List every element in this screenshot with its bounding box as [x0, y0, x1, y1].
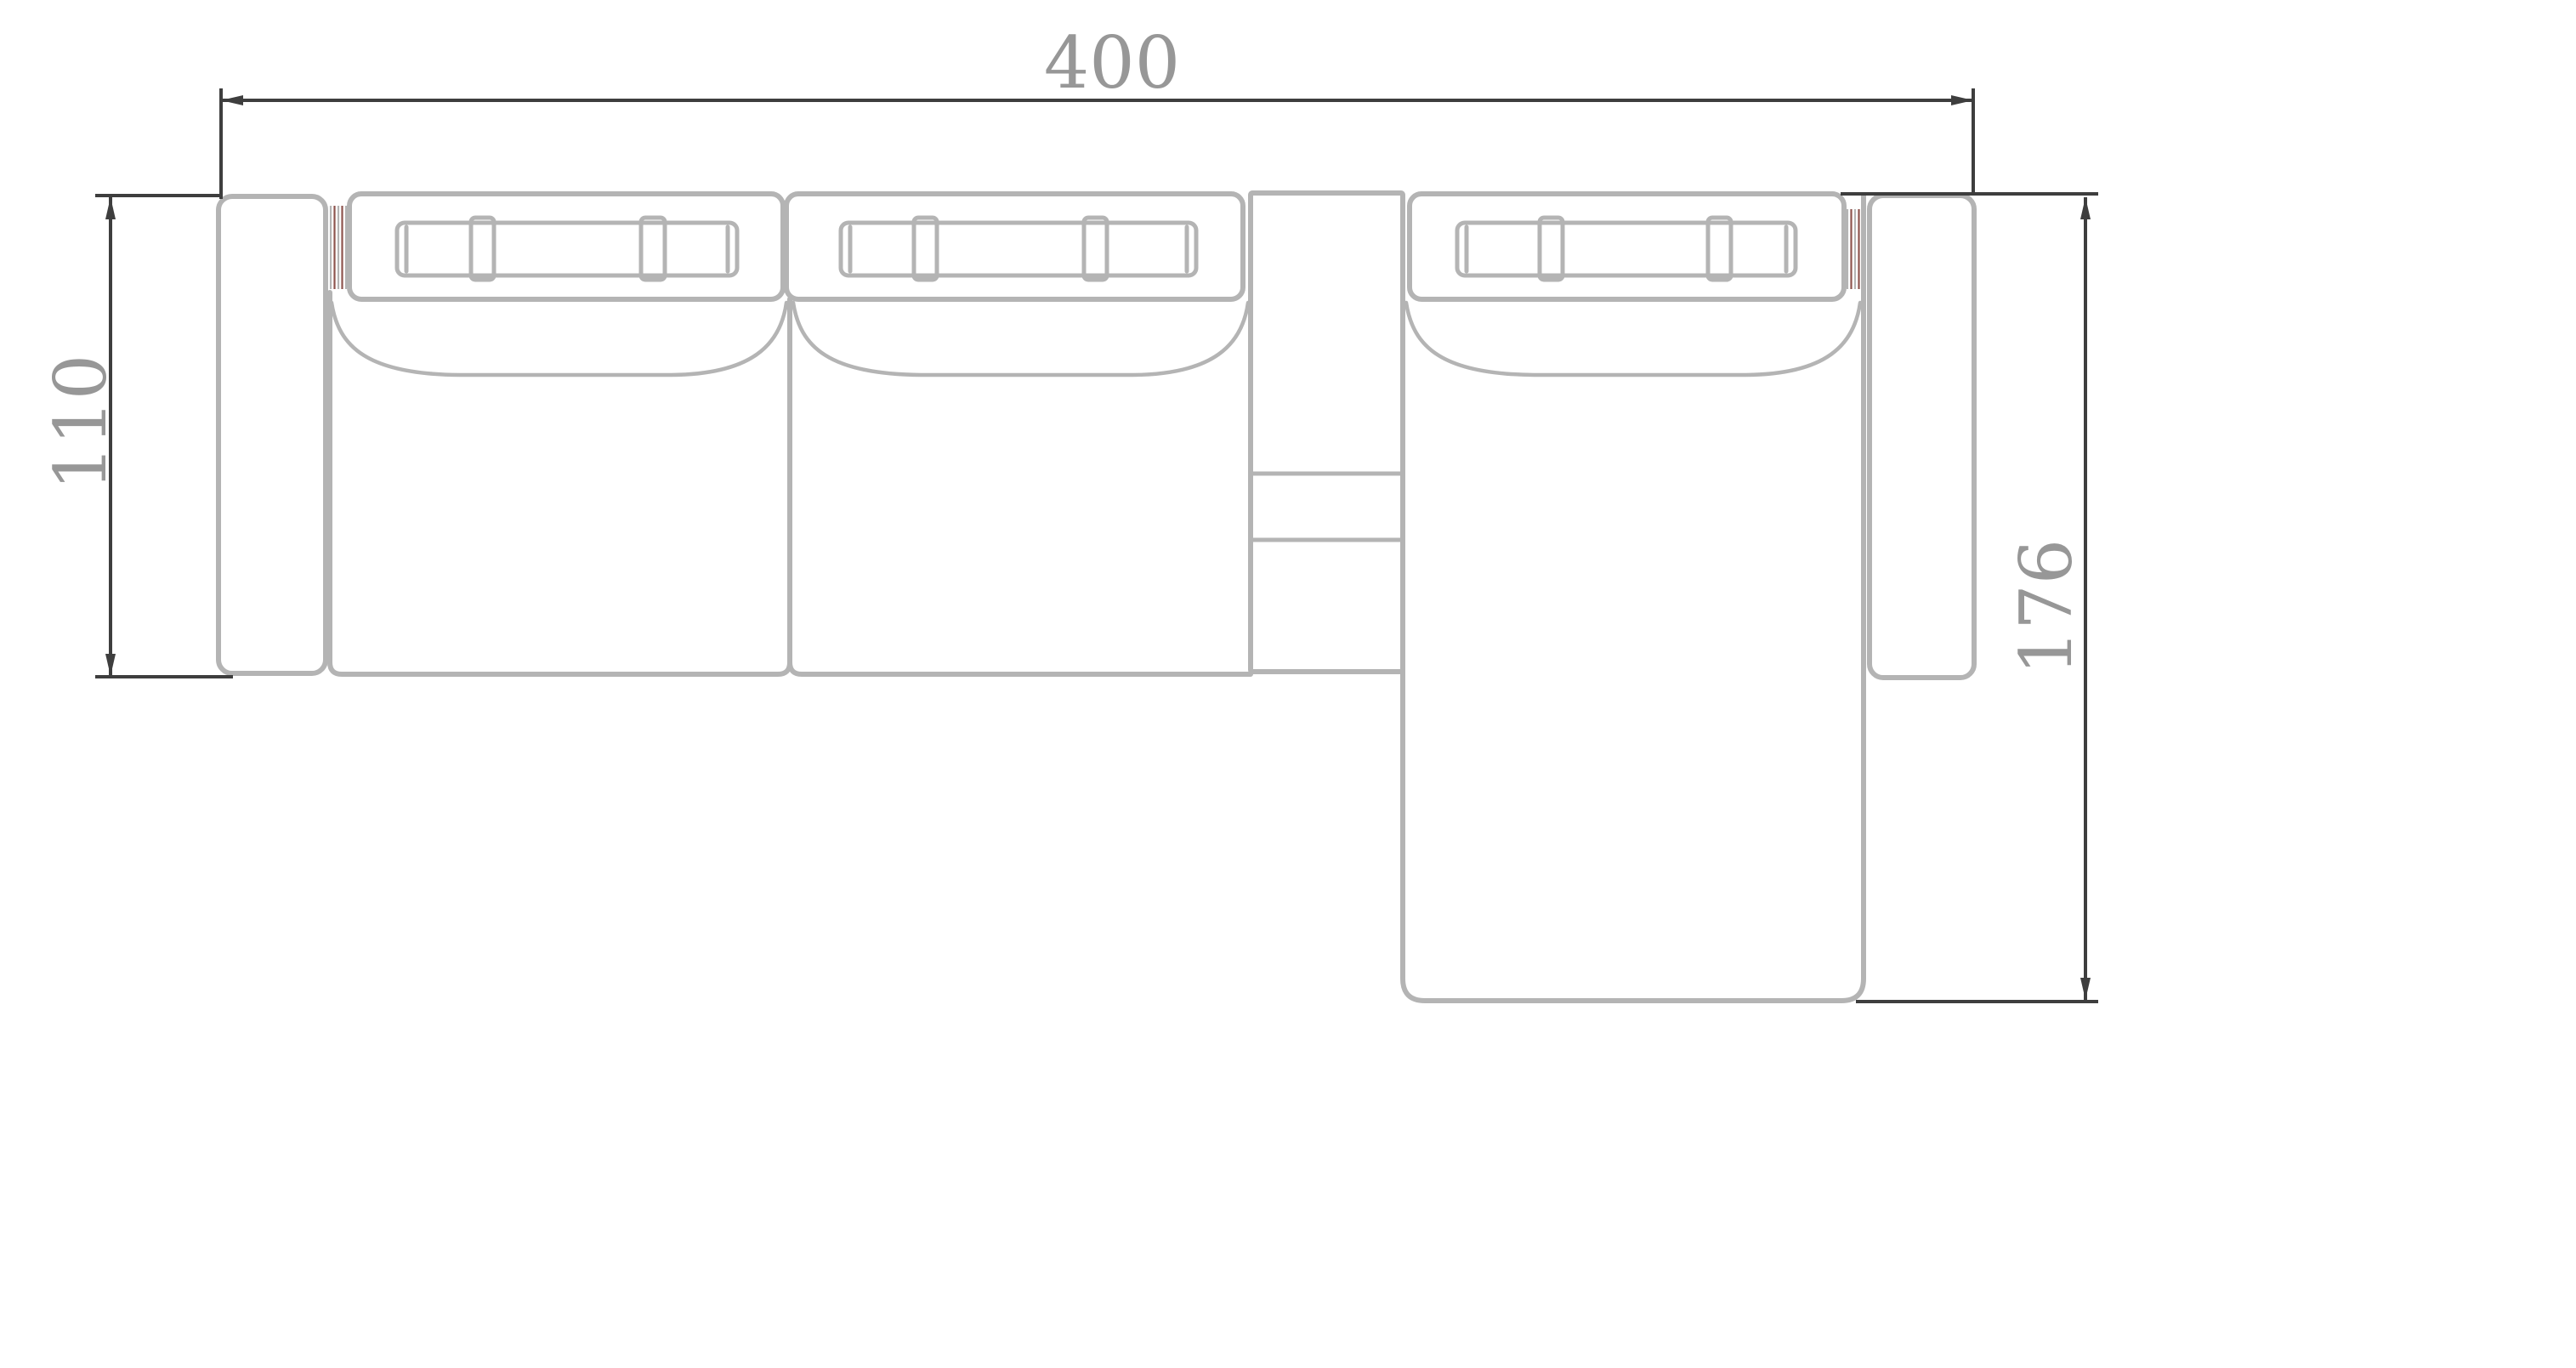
sofa-plan [218, 193, 1974, 1001]
chaise-cushion-edge [1406, 303, 1860, 375]
dimension-label-176: 176 [2005, 539, 2088, 675]
dimension-label-110: 110 [39, 355, 122, 491]
seat2-back [786, 194, 1243, 299]
chaise-headrest [1457, 223, 1796, 275]
seat2-cushion-edge [793, 303, 1248, 375]
arrowhead-top [105, 197, 116, 219]
seat2-strap-right [1084, 218, 1107, 280]
left-connector-hatch [331, 206, 346, 289]
dimension-sofa-depth: 110 [39, 196, 233, 677]
seat1-body [330, 292, 790, 674]
seat2-strap-left [914, 218, 937, 280]
right-armrest [1870, 196, 1974, 678]
seat1-cushion-edge [332, 303, 786, 375]
arrowhead-left [221, 95, 243, 105]
arrowhead-right [1951, 95, 1973, 105]
left-armrest [218, 196, 326, 673]
arrowhead-bottom [2080, 978, 2091, 1000]
dimension-chaise-length: 176 [1841, 194, 2098, 1002]
chaise-body [1403, 196, 1864, 1001]
console-unit [1251, 193, 1403, 672]
arrowhead-bottom [105, 654, 116, 676]
dimension-overall-width: 400 [221, 21, 1973, 199]
seat1-strap-right [641, 218, 665, 280]
seat1-strap-left [471, 218, 494, 280]
drawing-canvas: 400 110 176 [0, 0, 2576, 1368]
chaise-strap-right [1708, 218, 1731, 280]
sofa-technical-drawing: 400 110 176 [0, 0, 2576, 1368]
seat2-headrest [841, 223, 1196, 275]
seat1-headrest [397, 223, 737, 275]
seat1-back [349, 194, 783, 299]
chaise-back [1410, 194, 1844, 299]
dimension-label-400: 400 [1044, 21, 1180, 105]
seat2-body [790, 299, 1251, 674]
right-connector-hatch [1847, 209, 1863, 289]
chaise-strap-left [1540, 218, 1563, 280]
arrowhead-top [2080, 197, 2091, 219]
